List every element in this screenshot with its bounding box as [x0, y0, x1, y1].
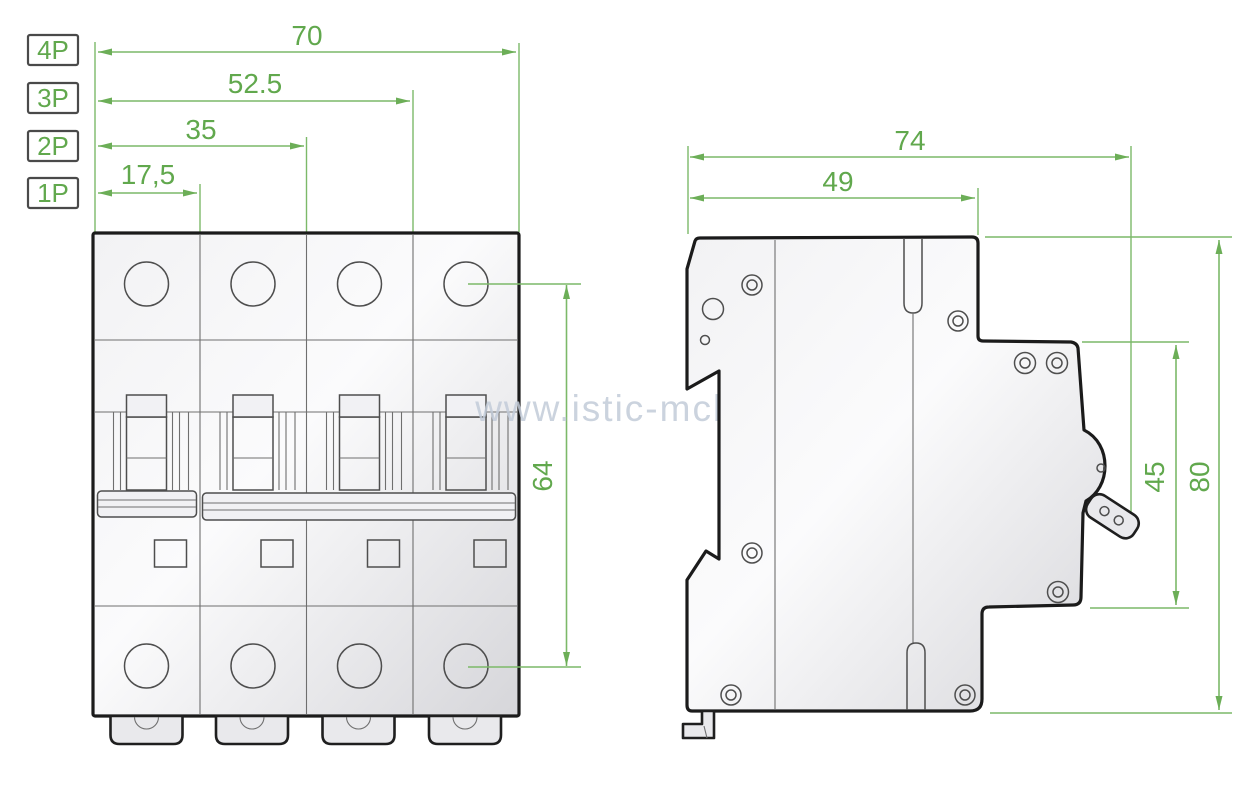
dim-64-label: 64	[527, 460, 558, 491]
toggle-lever	[1082, 490, 1142, 542]
pole-label-4p: 4P	[28, 35, 78, 65]
pole-label-text: 1P	[37, 178, 69, 208]
diagram-svg: 4P 3P 2P 1P 70 52.5 35 1	[0, 0, 1249, 786]
pole-label-3p: 3P	[28, 83, 78, 113]
dim-74-label: 74	[894, 125, 925, 156]
mcb-dimension-diagram: 4P 3P 2P 1P 70 52.5 35 1	[0, 0, 1249, 786]
dim-52-5-label: 52.5	[228, 68, 283, 99]
pole-label-2p: 2P	[28, 131, 78, 161]
front-view: 4P 3P 2P 1P 70 52.5 35 1	[28, 20, 581, 744]
side-body	[687, 237, 1105, 711]
dim-80-label: 80	[1184, 461, 1215, 492]
dim-45-label: 45	[1139, 461, 1170, 492]
handle-tie-bars	[98, 491, 516, 520]
bottom-terminal-tabs	[111, 716, 502, 744]
pole-label-text: 4P	[37, 35, 69, 65]
pole-label-text: 2P	[37, 131, 69, 161]
dim-17-5-label: 17,5	[121, 159, 176, 190]
side-view: 74 49	[683, 125, 1232, 738]
tie-bar-single	[98, 491, 197, 517]
dim-70-label: 70	[291, 20, 322, 51]
front-width-dimensions: 70 52.5 35 17,5	[95, 20, 519, 232]
dim-49-label: 49	[822, 166, 853, 197]
dim-35-label: 35	[185, 114, 216, 145]
tie-bar-triple	[203, 493, 516, 520]
pole-label-1p: 1P	[28, 178, 78, 208]
pole-label-text: 3P	[37, 83, 69, 113]
din-clip	[683, 711, 714, 738]
